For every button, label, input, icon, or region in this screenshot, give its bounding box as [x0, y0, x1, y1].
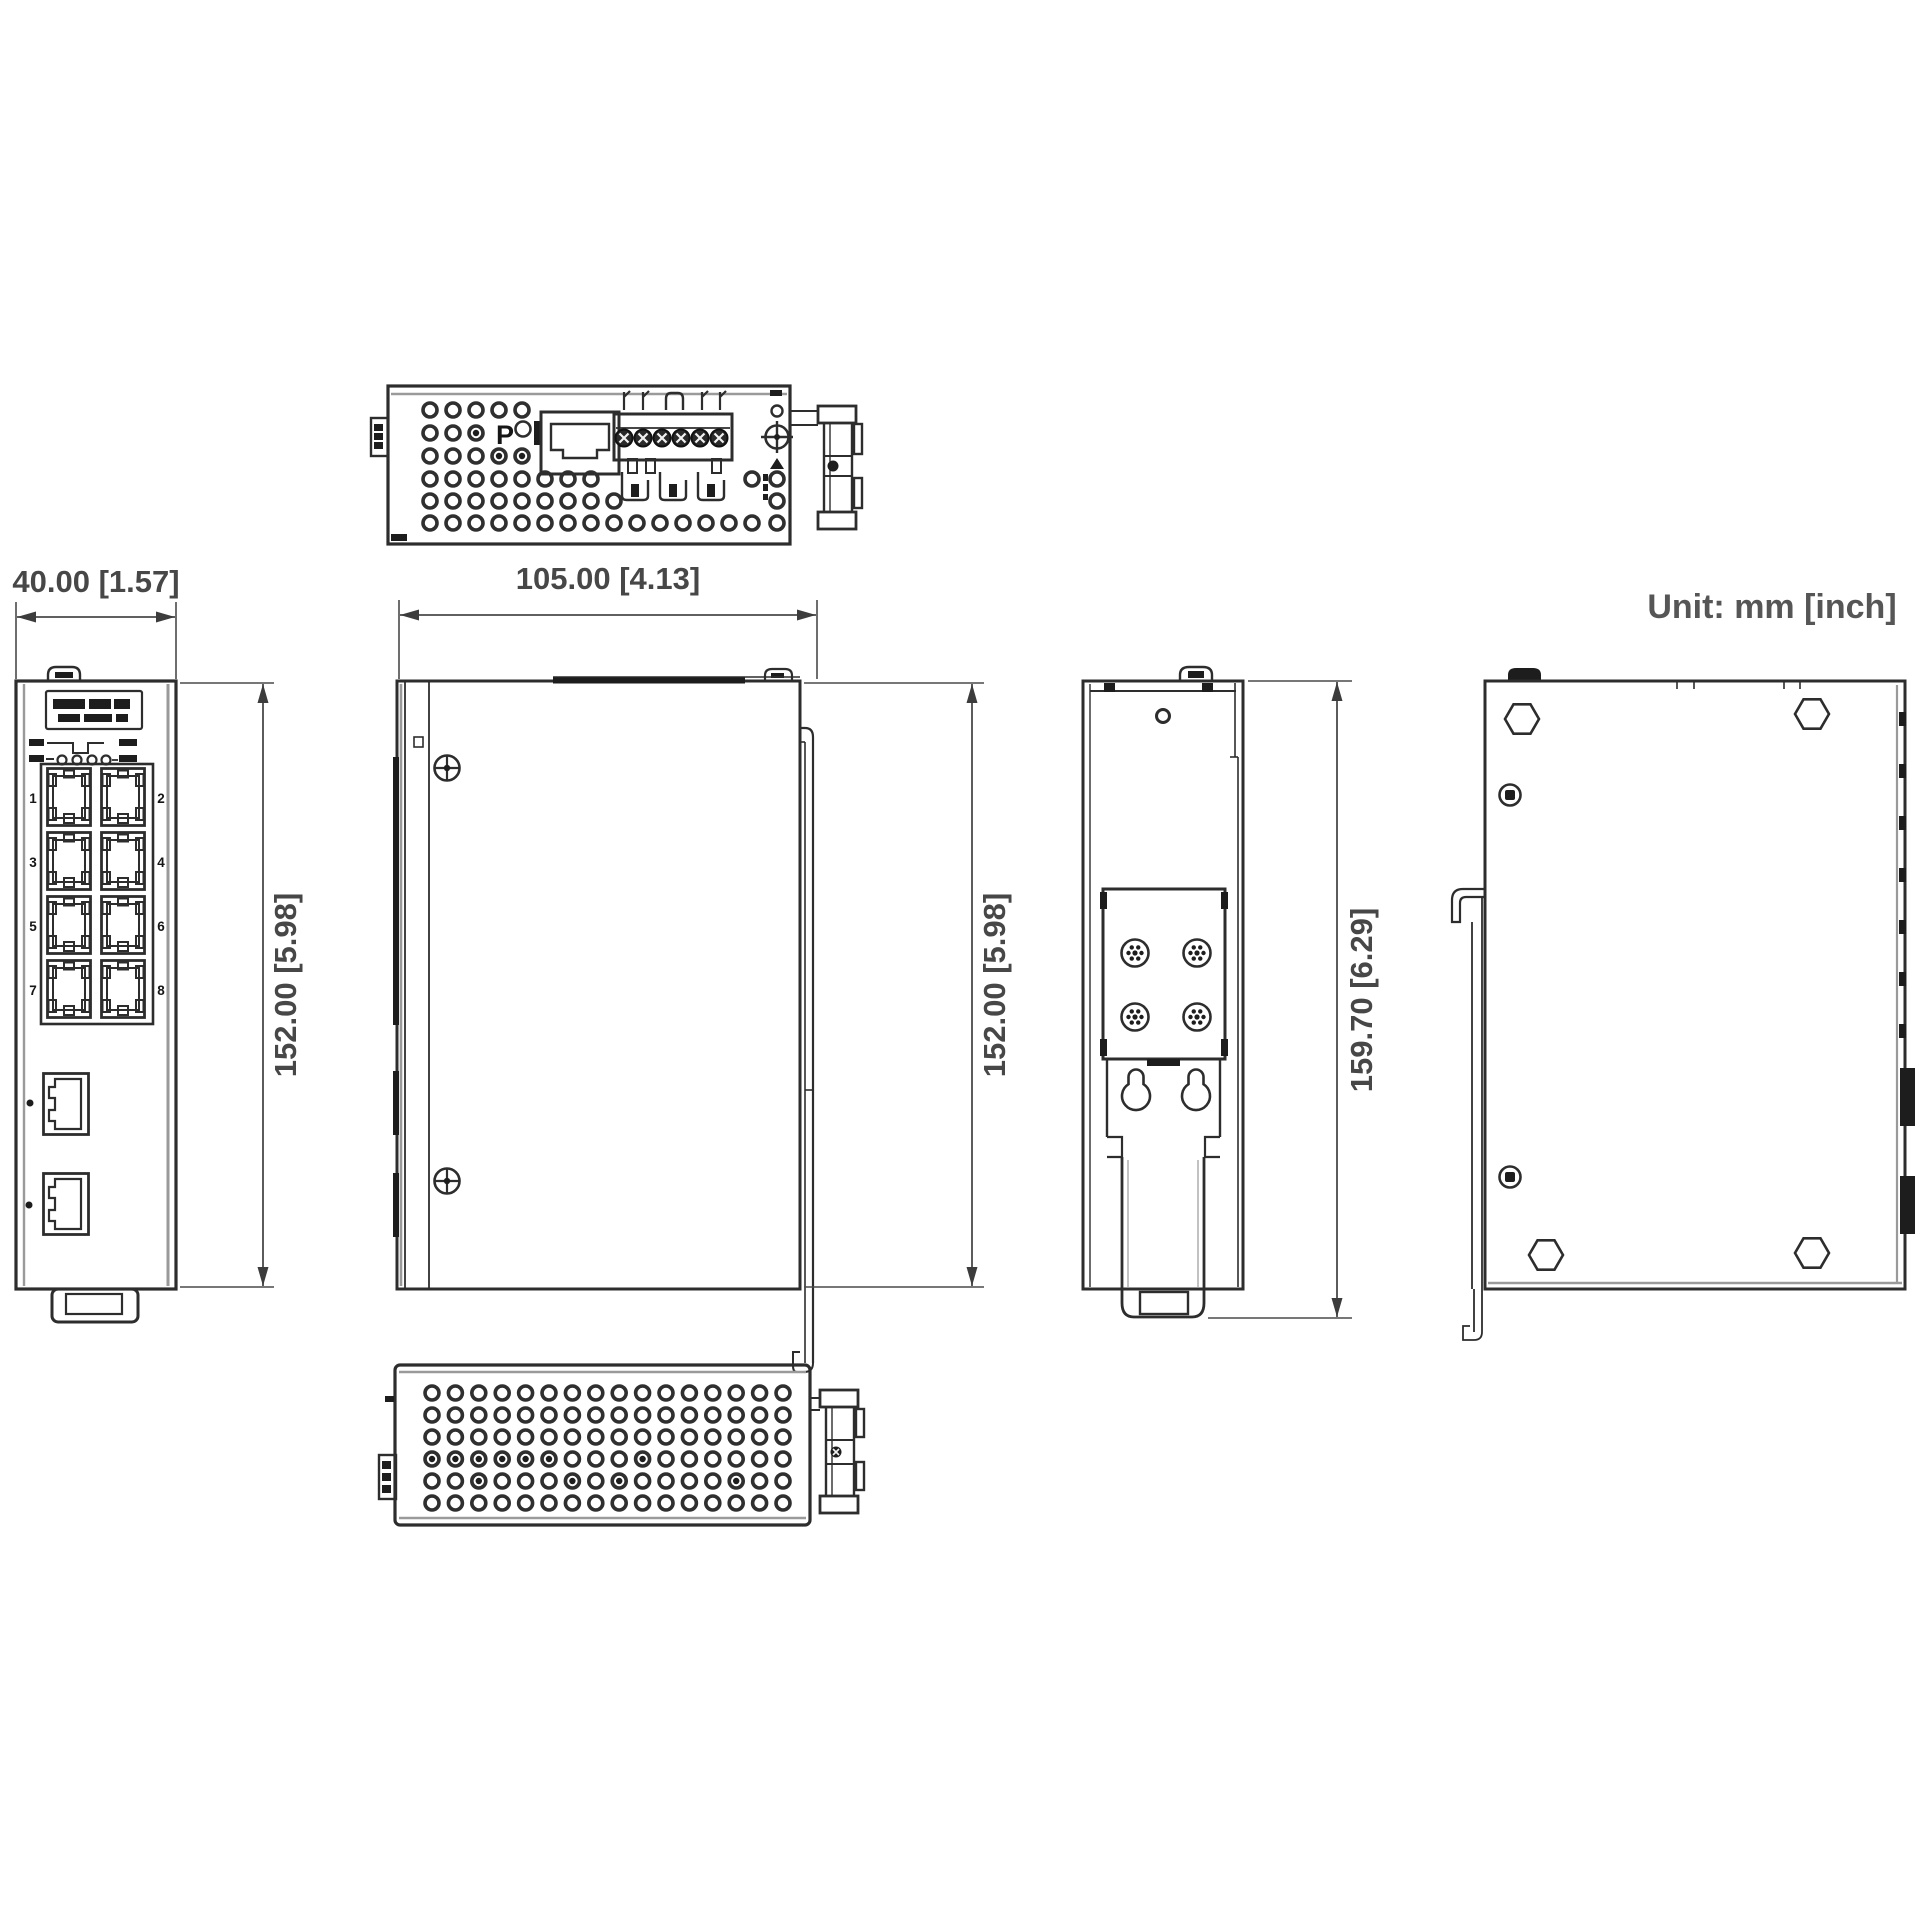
vent-hole — [753, 1430, 767, 1444]
vent-hole — [495, 1408, 509, 1422]
port-label: 8 — [157, 983, 165, 998]
vent-hole — [682, 1408, 696, 1422]
vent-hole — [423, 472, 437, 486]
dimension-front-height: 152.00 [5.98] — [180, 683, 303, 1287]
vent-hole — [636, 1474, 650, 1488]
side-view-right — [1452, 668, 1915, 1340]
vent-hole — [448, 1430, 462, 1444]
vent-hole-plug — [569, 1478, 575, 1484]
port-profile-marks — [1899, 712, 1915, 1234]
vent-hole — [729, 1408, 743, 1422]
vent-hole — [659, 1386, 673, 1400]
vent-hole — [472, 1496, 486, 1510]
vent-hole — [446, 403, 460, 417]
vent-hole — [659, 1452, 673, 1466]
vent-hole — [519, 1408, 533, 1422]
vent-hole — [589, 1452, 603, 1466]
vent-hole — [745, 472, 759, 486]
vent-hole — [515, 472, 529, 486]
vent-hole — [446, 472, 460, 486]
vent-hole — [589, 1408, 603, 1422]
din-latch-bump-mark — [55, 672, 73, 678]
vent-hole — [538, 494, 552, 508]
rj45-uplink-port — [44, 1074, 89, 1135]
vent-hole — [561, 516, 575, 530]
dimension-front-width: 40.00 [1.57] — [12, 564, 179, 679]
vent-hole — [770, 472, 784, 486]
din-rail-hook — [1452, 889, 1486, 1340]
dim-label-depth: 105.00 [4.13] — [516, 561, 700, 596]
vent-hole — [495, 1474, 509, 1488]
vent-hole — [607, 494, 621, 508]
vent-hole — [469, 472, 483, 486]
vent-hole — [706, 1474, 720, 1488]
vent-hole — [542, 1408, 556, 1422]
socket-screw-icon — [1500, 785, 1521, 806]
port-profile-mark — [393, 1071, 399, 1135]
corner-mark — [770, 390, 782, 396]
wire-clamp-symbols — [622, 459, 724, 500]
vent-hole — [682, 1452, 696, 1466]
port-label: 1 — [29, 791, 37, 806]
din-latch-bump — [1508, 668, 1541, 681]
vent-hole-grid — [425, 1386, 790, 1510]
top-notch — [1104, 683, 1115, 692]
vent-hole-plug — [473, 430, 479, 436]
vent-hole — [519, 1386, 533, 1400]
vent-hole — [492, 403, 506, 417]
port-profile-mark — [393, 1173, 399, 1237]
dimensional-drawing-page: P — [0, 0, 1920, 1920]
vent-hole-plug — [546, 1456, 552, 1462]
vent-hole — [565, 1386, 579, 1400]
rear-view-outline — [1083, 681, 1243, 1289]
vent-hole — [446, 516, 460, 530]
vent-hole — [682, 1474, 696, 1488]
vent-hole — [423, 426, 437, 440]
vent-hole — [495, 1430, 509, 1444]
vent-hole — [469, 449, 483, 463]
dim-label-front-height: 152.00 [5.98] — [268, 893, 303, 1077]
vent-hole — [425, 1386, 439, 1400]
socket-screw-icon — [1500, 1167, 1521, 1188]
vent-hole — [492, 516, 506, 530]
din-clip-bottom-view — [810, 1390, 864, 1513]
unit-note: Unit: mm [inch] — [1647, 588, 1896, 626]
port-label: 2 — [157, 791, 165, 806]
latch-notch — [414, 737, 423, 747]
keyhole-slot — [1122, 1070, 1150, 1111]
vent-hole — [584, 494, 598, 508]
rear-view — [1083, 667, 1243, 1317]
port-label: 7 — [29, 983, 37, 998]
drawing-svg: P — [0, 0, 1920, 1920]
rj45-port — [48, 769, 91, 826]
top-edge-hinge-mark — [553, 678, 745, 684]
vent-hole — [565, 1430, 579, 1444]
vent-hole-plug — [499, 1456, 505, 1462]
vent-hole-plug — [496, 453, 502, 459]
din-latch-bump-mark — [1188, 671, 1204, 678]
vent-hole — [612, 1408, 626, 1422]
vent-hole-plug — [452, 1456, 458, 1462]
corner-mark — [391, 534, 407, 541]
vent-hole — [515, 403, 529, 417]
vent-hole — [753, 1452, 767, 1466]
vent-hole — [565, 1452, 579, 1466]
ground-triangle-icon — [770, 458, 784, 469]
torx-screw-icon — [1122, 1004, 1149, 1031]
vent-hole — [469, 403, 483, 417]
clip-pull-slot — [1140, 1292, 1188, 1314]
vent-hole — [515, 494, 529, 508]
rj45-port — [102, 833, 145, 890]
vent-hole — [745, 516, 759, 530]
vent-hole-plug — [519, 453, 525, 459]
port-label: 3 — [29, 855, 37, 870]
vent-hole — [776, 1474, 790, 1488]
vent-hole — [584, 516, 598, 530]
vent-hole — [659, 1474, 673, 1488]
vent-hole — [495, 1496, 509, 1510]
terminal-block — [614, 414, 732, 460]
port-profile-mark — [393, 757, 399, 1025]
vent-hole-grid — [423, 403, 784, 530]
dimension-overall-height: 159.70 [6.29] — [1208, 681, 1379, 1318]
vent-hole — [636, 1430, 650, 1444]
vent-hole — [519, 1496, 533, 1510]
panel-marking: P — [496, 420, 514, 450]
vent-hole — [753, 1386, 767, 1400]
vent-hole — [542, 1386, 556, 1400]
vent-hole — [448, 1386, 462, 1400]
terminal-screw-icon — [635, 430, 652, 447]
vent-hole — [448, 1474, 462, 1488]
vent-hole — [753, 1496, 767, 1510]
clip-screw-icon — [828, 461, 839, 472]
vent-hole — [776, 1430, 790, 1444]
vent-hole — [612, 1496, 626, 1510]
vent-hole — [706, 1408, 720, 1422]
vent-hole — [425, 1474, 439, 1488]
vent-hole — [770, 516, 784, 530]
vent-hole — [589, 1474, 603, 1488]
vent-hole — [676, 516, 690, 530]
vent-hole — [776, 1408, 790, 1422]
dimension-depth: 105.00 [4.13] — [399, 561, 817, 679]
terminal-screw-icon — [692, 430, 709, 447]
vent-hole — [542, 1474, 556, 1488]
top-left-latch-tab — [371, 418, 388, 456]
vent-hole — [495, 1386, 509, 1400]
vent-hole — [706, 1386, 720, 1400]
panel-marking-dot — [516, 422, 531, 437]
vent-hole — [423, 494, 437, 508]
vent-hole — [469, 494, 483, 508]
vent-hole — [612, 1386, 626, 1400]
din-clip-bracket — [1107, 1059, 1220, 1317]
vent-hole — [630, 516, 644, 530]
vent-hole — [729, 1496, 743, 1510]
vent-hole — [659, 1408, 673, 1422]
vent-hole — [589, 1430, 603, 1444]
rj45-port — [102, 961, 145, 1018]
rj45-port — [48, 897, 91, 954]
vent-hole — [589, 1496, 603, 1510]
dimension-side-height: 152.00 [5.98] — [804, 683, 1012, 1287]
product-label — [46, 691, 142, 729]
vent-hole — [492, 494, 506, 508]
uplink-port-profile — [1900, 1176, 1915, 1234]
vent-hole — [492, 472, 506, 486]
phillips-screw-icon — [435, 1169, 460, 1194]
dim-label-side-height: 152.00 [5.98] — [977, 893, 1012, 1077]
uplink-port-profile — [1900, 1068, 1915, 1126]
vent-hole — [561, 494, 575, 508]
vent-hole — [659, 1496, 673, 1510]
vent-hole — [776, 1496, 790, 1510]
vent-hole — [472, 1386, 486, 1400]
vent-hole — [706, 1452, 720, 1466]
vent-hole — [542, 1496, 556, 1510]
vent-hole — [770, 494, 784, 508]
console-port — [541, 412, 619, 474]
phillips-screw-icon — [435, 756, 460, 781]
vent-hole — [448, 1496, 462, 1510]
terminal-screw-icon — [673, 430, 690, 447]
vent-hole — [776, 1386, 790, 1400]
torx-screw-icon — [1184, 1004, 1211, 1031]
vent-hole — [542, 1430, 556, 1444]
port-label: 5 — [29, 919, 37, 934]
vent-hole — [538, 516, 552, 530]
vent-hole-plug — [429, 1456, 435, 1462]
front-view: 1 2 3 4 5 6 7 8 — [16, 667, 176, 1322]
rj45-port — [48, 833, 91, 890]
vent-hole — [472, 1430, 486, 1444]
vent-hole — [753, 1474, 767, 1488]
rj45-port — [102, 769, 145, 826]
led-indicator-row — [29, 739, 137, 765]
torx-screw-icon — [1122, 940, 1149, 967]
vent-hole — [729, 1452, 743, 1466]
rj45-port — [102, 897, 145, 954]
port-label-dot — [26, 1202, 33, 1209]
vent-hole-plug — [733, 1478, 739, 1484]
vent-hole — [722, 516, 736, 530]
din-rail-clip-profile — [793, 728, 813, 1372]
vent-hole — [706, 1496, 720, 1510]
dim-label-front-width: 40.00 [1.57] — [12, 564, 179, 599]
vent-hole — [446, 449, 460, 463]
vent-hole — [682, 1496, 696, 1510]
vent-hole — [699, 516, 713, 530]
din-clip-bottom-tab — [52, 1289, 138, 1322]
port-tick — [534, 421, 540, 445]
rj45-port — [48, 961, 91, 1018]
vent-hole — [448, 1408, 462, 1422]
din-mount-plate — [1100, 889, 1228, 1059]
vent-hole — [753, 1408, 767, 1422]
vent-hole — [469, 516, 483, 530]
hex-bolt-icon — [1795, 1238, 1829, 1267]
vent-hole — [423, 403, 437, 417]
port-label-dot — [27, 1100, 34, 1107]
top-view: P — [371, 386, 862, 544]
vent-hole-plug — [476, 1478, 482, 1484]
vent-hole — [612, 1452, 626, 1466]
side-mark — [385, 1396, 394, 1402]
vent-hole-plug — [639, 1456, 645, 1462]
vent-hole — [659, 1430, 673, 1444]
vent-hole — [612, 1430, 626, 1444]
vent-hole — [472, 1408, 486, 1422]
vent-hole — [519, 1430, 533, 1444]
vent-hole — [515, 516, 529, 530]
side-view-right-outline — [1485, 681, 1905, 1289]
side-view — [393, 669, 813, 1372]
bottom-view — [379, 1365, 864, 1525]
terminal-screw-icon — [711, 430, 728, 447]
vent-hole — [423, 516, 437, 530]
vent-hole — [565, 1408, 579, 1422]
vent-hole — [682, 1430, 696, 1444]
terminal-screw-icon — [654, 430, 671, 447]
vent-hole — [729, 1430, 743, 1444]
vent-hole — [423, 449, 437, 463]
vent-hole — [425, 1496, 439, 1510]
vent-hole — [446, 426, 460, 440]
vent-hole — [589, 1386, 603, 1400]
vent-hole — [706, 1430, 720, 1444]
vent-hole — [446, 494, 460, 508]
vent-hole — [636, 1386, 650, 1400]
din-clip-top-view — [790, 406, 862, 529]
hex-bolt-icon — [1795, 699, 1829, 728]
vent-hole — [565, 1496, 579, 1510]
terminal-screw-icon — [616, 430, 633, 447]
hex-bolt-icon — [1505, 704, 1539, 733]
vent-hole-plug — [522, 1456, 528, 1462]
torx-screw-icon — [1184, 940, 1211, 967]
rj45-uplink-port — [44, 1174, 89, 1235]
vent-hole — [425, 1430, 439, 1444]
vent-hole — [776, 1452, 790, 1466]
vent-hole — [425, 1408, 439, 1422]
hex-bolt-icon — [1529, 1240, 1563, 1269]
vent-hole — [653, 516, 667, 530]
top-notch — [1202, 683, 1213, 692]
vent-hole — [636, 1496, 650, 1510]
dim-label-overall-height: 159.70 [6.29] — [1344, 908, 1379, 1092]
vent-hole — [636, 1408, 650, 1422]
vent-hole — [682, 1386, 696, 1400]
vent-hole — [519, 1474, 533, 1488]
port-label: 4 — [157, 855, 165, 870]
vent-hole — [607, 516, 621, 530]
vent-hole-plug — [476, 1456, 482, 1462]
vent-hole — [729, 1386, 743, 1400]
port-label: 6 — [157, 919, 165, 934]
mounting-hole — [1157, 710, 1170, 723]
vent-hole-plug — [616, 1478, 622, 1484]
keyhole-slot — [1182, 1070, 1210, 1111]
rj45-port-block — [41, 764, 153, 1024]
